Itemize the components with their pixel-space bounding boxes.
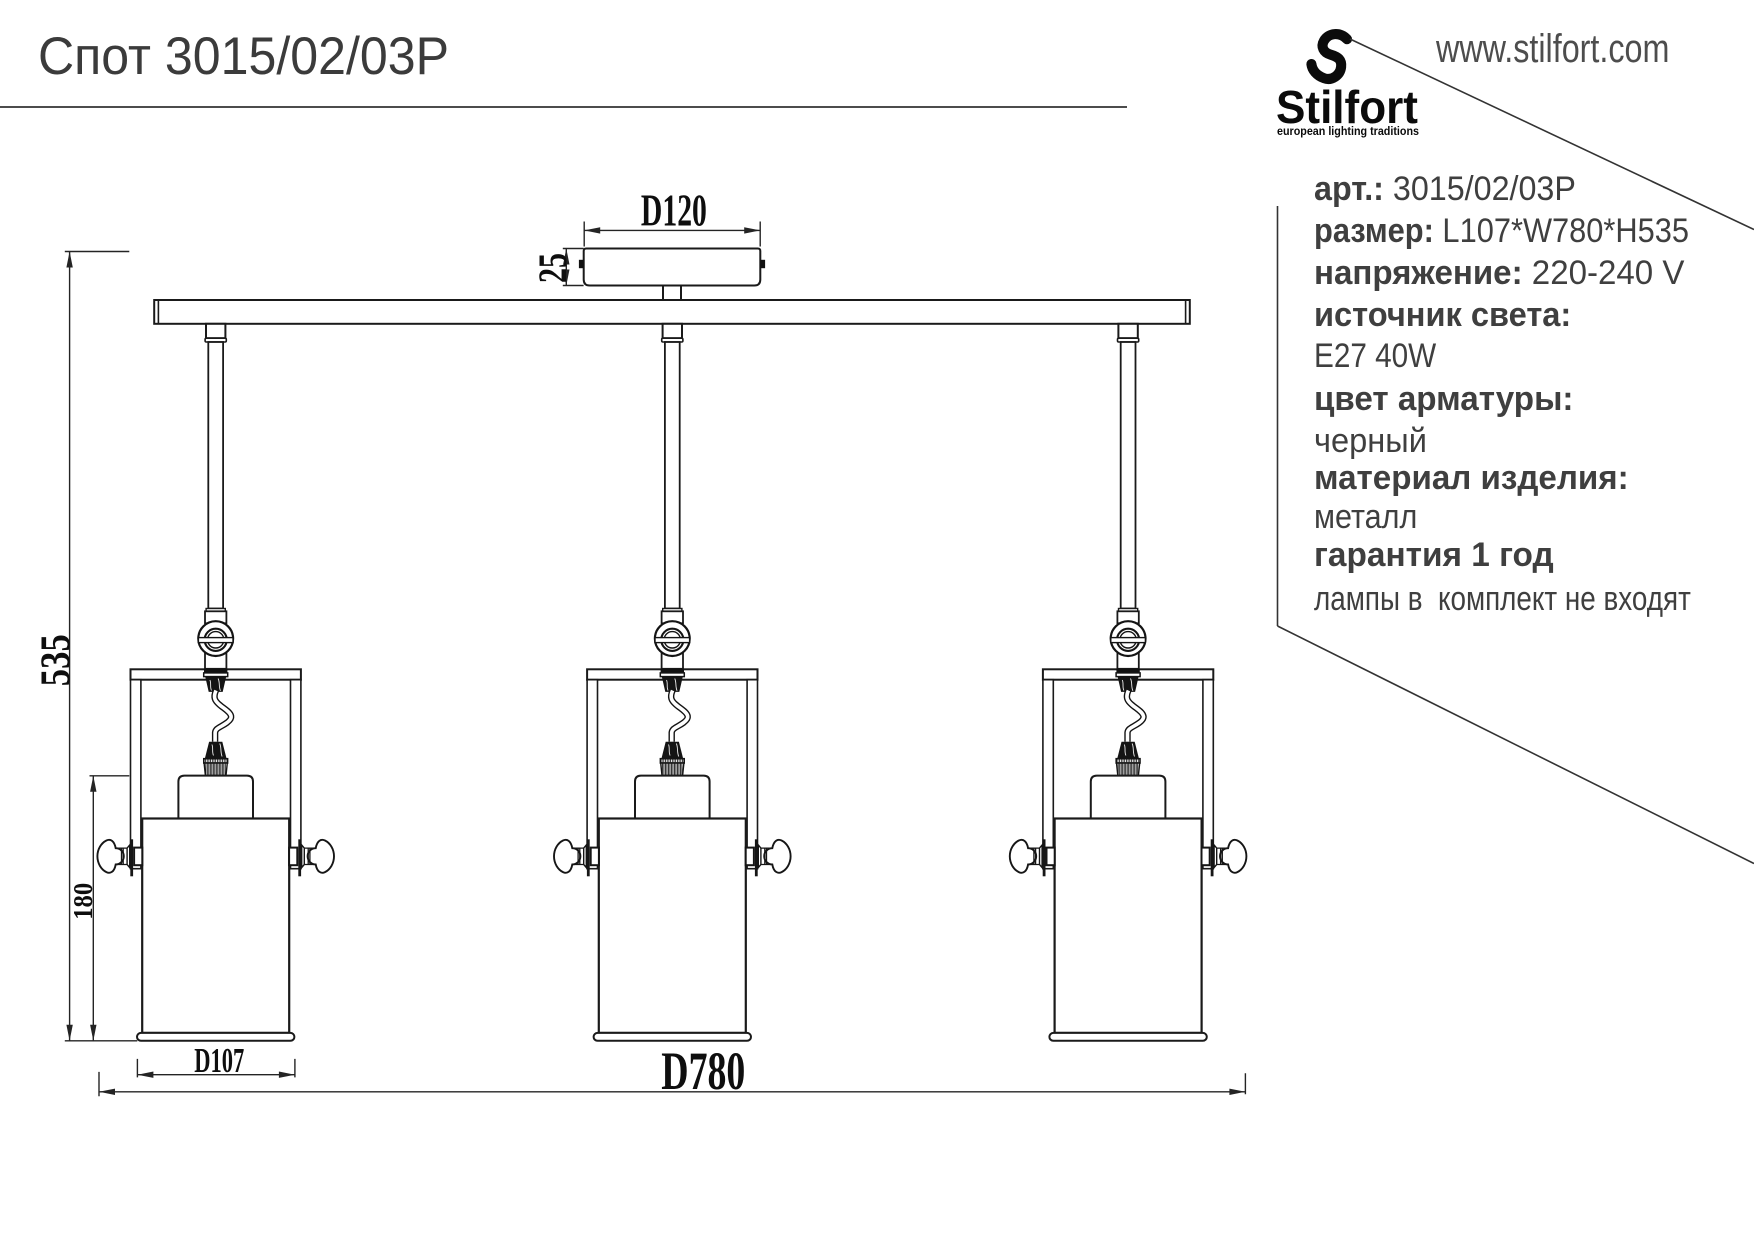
svg-text:D120: D120 [641, 185, 707, 236]
svg-text:25: 25 [530, 253, 575, 283]
svg-text:180: 180 [68, 883, 98, 920]
svg-text:535: 535 [33, 634, 79, 686]
svg-text:D107: D107 [194, 1041, 244, 1080]
svg-text:D780: D780 [661, 1041, 745, 1101]
